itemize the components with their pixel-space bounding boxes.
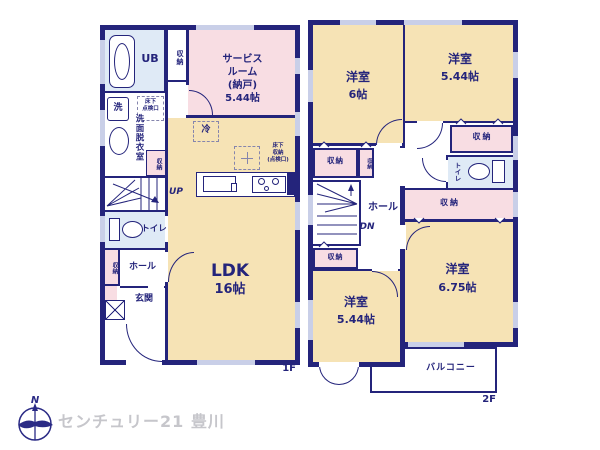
room-ne-size: 5.44帖 — [420, 70, 500, 83]
service-room-label: サービス ルーム (納戸) 5.44帖 — [200, 53, 285, 105]
door-opening — [446, 160, 448, 182]
washer-label: 洗 — [108, 103, 128, 114]
bifold-caret-icon — [492, 118, 504, 125]
washroom-label: 洗面脱衣室 — [132, 100, 144, 176]
wall-segment — [105, 210, 165, 212]
floor1-label: 1F — [268, 363, 296, 375]
storage-label: 収納 — [315, 253, 356, 261]
bifold-caret-icon — [318, 241, 330, 248]
room-sw-size: 5.44帖 — [321, 313, 391, 326]
room-se-name: 洋室 — [415, 262, 500, 276]
storage-label: 収納 — [106, 254, 118, 282]
storage-label: 収納 — [428, 198, 472, 208]
bifold-caret-icon — [455, 118, 467, 125]
window-marker — [295, 302, 300, 328]
toilet-label: トイレ — [450, 158, 460, 186]
up-label: UP — [168, 187, 184, 198]
service-room-line: 5.44帖 — [200, 92, 285, 105]
toilet-label: トイレ — [141, 224, 167, 234]
window-marker — [308, 195, 313, 225]
dn-label: DN — [357, 222, 377, 233]
underfloor-line: 収納 — [262, 150, 294, 157]
window-marker — [404, 20, 462, 25]
window-marker — [308, 70, 313, 102]
door-opening — [399, 225, 406, 249]
balcony-label: バルコニー — [405, 363, 497, 374]
floor2-label: 2F — [468, 394, 496, 406]
brand-watermark: センチュリー21 豊川 — [58, 412, 318, 431]
wall-segment — [186, 115, 295, 118]
compass-n-label: N — [28, 395, 42, 407]
ub-label: UB — [136, 52, 164, 65]
underfloor-storage-box — [234, 146, 260, 170]
storage-label: 収納 — [315, 156, 356, 165]
storage-label: 収納 — [455, 132, 510, 142]
window-marker — [408, 342, 464, 347]
stairs-icon-2f — [315, 182, 359, 244]
door-arc — [339, 365, 359, 385]
room-se-size: 6.75帖 — [415, 281, 500, 294]
service-room-line: ルーム — [200, 66, 285, 79]
room-sw-name: 洋室 — [321, 295, 391, 309]
underfloor-label: 床下 収納 (点検口) — [262, 143, 294, 164]
toilet-tank-icon — [109, 218, 120, 241]
bifold-caret-icon — [318, 141, 330, 148]
room-ne-name: 洋室 — [420, 52, 500, 66]
storage-label: 収納 — [360, 151, 372, 176]
window-marker — [295, 202, 300, 230]
bathtub-inner-icon — [114, 43, 130, 80]
faucet-icon — [231, 183, 237, 192]
washbasin-icon — [109, 127, 129, 155]
window-marker — [513, 136, 518, 160]
burner-icon — [264, 186, 269, 191]
bifold-caret-icon — [360, 141, 372, 148]
window-marker — [197, 360, 255, 365]
wall-segment — [287, 172, 295, 195]
window-marker — [513, 52, 518, 78]
bifold-caret-icon — [494, 217, 506, 224]
window-marker — [295, 112, 300, 136]
room-nw-size: 6帖 — [323, 88, 393, 101]
shoe-box — [105, 286, 117, 300]
window-marker — [100, 110, 105, 146]
door-opening — [148, 286, 164, 288]
window-marker — [295, 58, 300, 74]
storage-label: 収納 — [170, 37, 184, 79]
storage-label: 収納 — [149, 153, 162, 175]
stairs-icon-1f — [105, 178, 165, 210]
door-arc — [319, 365, 339, 385]
window-marker — [100, 40, 105, 84]
window-marker — [513, 302, 518, 328]
floor-plan-canvas: UB 収納 サービス ルーム (納戸) 5.44帖 洗 床下 点検口 洗面脱衣室… — [0, 0, 600, 450]
window-marker — [100, 216, 105, 242]
hall-label: ホール — [362, 202, 404, 214]
window-marker — [196, 25, 254, 30]
ldk-name-label: LDK — [195, 261, 265, 281]
window-marker — [308, 300, 313, 340]
ldk-size-label: 16帖 — [195, 282, 265, 298]
toilet-bowl-icon — [122, 221, 143, 238]
underfloor-line: 床下 — [262, 143, 294, 150]
wall-segment — [105, 248, 165, 250]
entrance-label: 玄関 — [120, 294, 168, 305]
bifold-caret-icon — [413, 217, 425, 224]
toilet-bowl-icon — [468, 163, 490, 180]
hall-label: ホール — [120, 262, 165, 273]
stove-icon — [252, 176, 286, 193]
double-door-opening — [319, 362, 359, 367]
window-marker — [513, 192, 518, 217]
underfloor-line: (点検口) — [262, 157, 294, 164]
fridge-label: 冷 — [194, 125, 218, 136]
service-room-line: サービス — [200, 53, 285, 66]
hall-passage-opening — [399, 148, 406, 186]
toilet-tank-icon — [492, 160, 505, 183]
burner-icon — [258, 178, 265, 185]
wall-segment — [186, 30, 189, 85]
wall-segment — [105, 176, 165, 178]
service-room-line: (納戸) — [200, 79, 285, 92]
burner-icon — [272, 178, 279, 185]
window-marker — [340, 20, 376, 25]
room-nw-name: 洋室 — [323, 70, 393, 84]
